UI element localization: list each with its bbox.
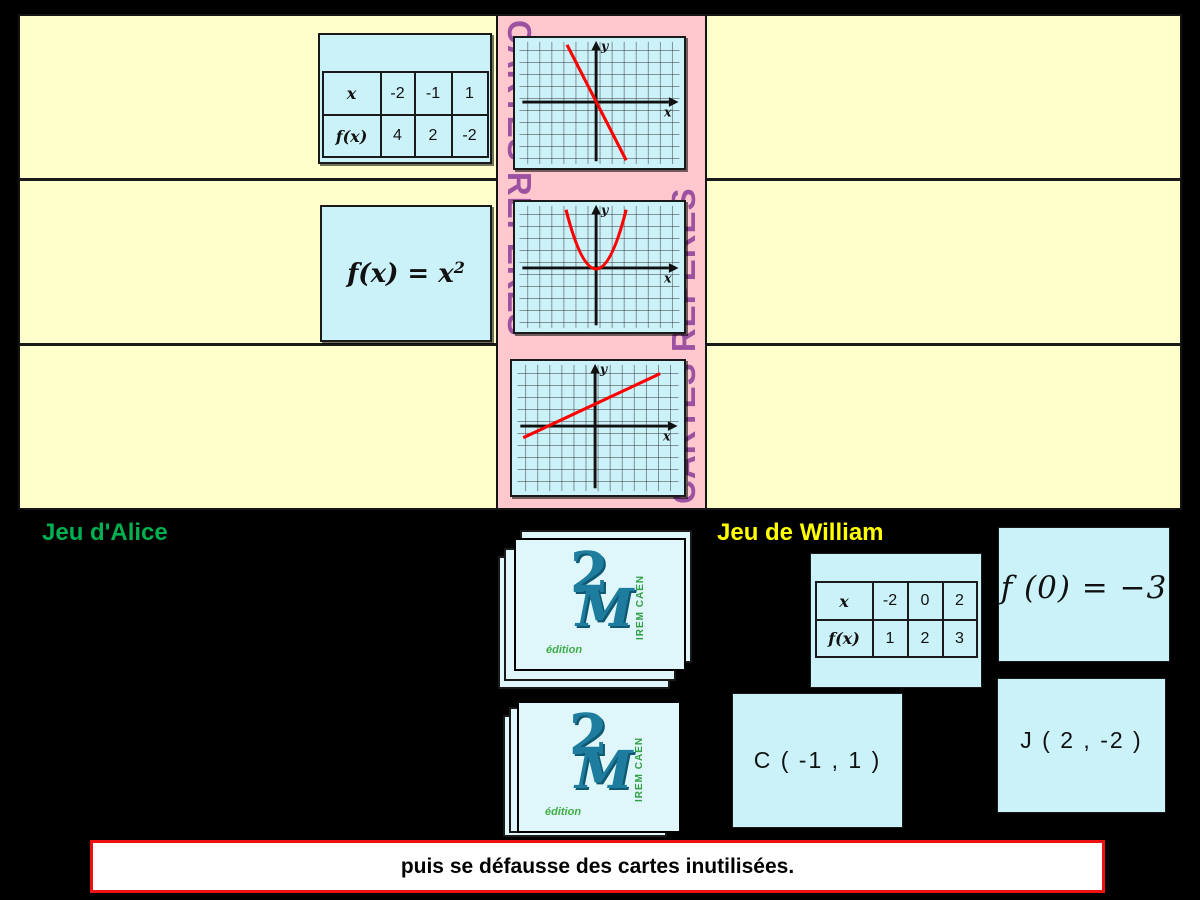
point-card-text: C ( -1 , 1 ) (754, 747, 882, 774)
value-table: x -2 -1 1 f(x) 4 2 -2 (322, 71, 489, 158)
table-cell: 1 (452, 72, 488, 115)
instruction-banner: puis se défausse des cartes inutilisées. (90, 840, 1105, 893)
table-cell: f(x) (816, 620, 873, 657)
formula-card[interactable]: f(x) = x2 (320, 205, 492, 342)
reference-cards-column: CARTES REPÈRES CARTES REPÈRES x (496, 16, 707, 508)
point-card-j[interactable]: J ( 2 , -2 ) (997, 678, 1166, 813)
row-divider (20, 343, 498, 346)
table-cell: x (323, 72, 381, 115)
table-cell: 1 (873, 620, 908, 657)
table-cell: -1 (415, 72, 452, 115)
row-divider (20, 178, 498, 181)
card-stack-bottom[interactable]: 2 M IREM CAEN édition (500, 694, 690, 840)
table-cell: 3 (943, 620, 977, 657)
table-cell: f(x) (323, 115, 381, 157)
alice-table-card[interactable]: x -2 -1 1 f(x) 4 2 -2 (318, 33, 492, 164)
graph-parabola: x y (515, 202, 684, 332)
row-divider (707, 343, 1180, 346)
x-axis-label: x (662, 429, 671, 444)
value-card-text: f (0) = −3 (1001, 570, 1168, 606)
graph-card-parabola[interactable]: x y (513, 200, 686, 334)
logo-edition-label: édition (546, 644, 582, 656)
table-cell: 4 (381, 115, 415, 157)
table-cell: x (816, 582, 873, 620)
table-cell: -2 (381, 72, 415, 115)
logo-institute-label: IREM CAEN (634, 718, 645, 802)
x-axis-label: x (663, 105, 672, 120)
william-title: Jeu de William (717, 519, 884, 547)
william-table-card[interactable]: x -2 0 2 f(x) 1 2 3 (810, 553, 982, 688)
value-card-f0[interactable]: f (0) = −3 (998, 527, 1170, 662)
instruction-text: puis se défausse des cartes inutilisées. (401, 855, 794, 879)
game-slide: x -2 -1 1 f(x) 4 2 -2 f(x) = x2 CARTES R… (0, 0, 1200, 900)
irem-2m-logo: 2 M IREM CAEN édition (554, 552, 646, 658)
table-cell: 0 (908, 582, 943, 620)
stack-card-front: 2 M IREM CAEN édition (517, 701, 681, 833)
logo-letter: M (576, 578, 634, 639)
value-table: x -2 0 2 f(x) 1 2 3 (815, 581, 978, 658)
graph-card-decreasing-line[interactable]: x y (513, 36, 686, 170)
matching-board: x -2 -1 1 f(x) 4 2 -2 f(x) = x2 CARTES R… (18, 14, 1182, 510)
x-axis-label: x (663, 271, 672, 286)
logo-letter: M (575, 740, 633, 801)
table-cell: 2 (415, 115, 452, 157)
logo-institute-label: IREM CAEN (635, 556, 646, 640)
graph-increasing-line: x y (512, 361, 684, 495)
graph-decreasing-line: x y (515, 38, 684, 168)
point-card-c[interactable]: C ( -1 , 1 ) (732, 693, 903, 828)
graph-card-increasing-line[interactable]: x y (510, 359, 686, 497)
irem-2m-logo: 2 M IREM CAEN édition (553, 714, 645, 820)
stack-card-front: 2 M IREM CAEN édition (514, 538, 686, 671)
table-cell: -2 (873, 582, 908, 620)
card-stack-top[interactable]: 2 M IREM CAEN édition (496, 528, 696, 692)
table-cell: 2 (943, 582, 977, 620)
formula-exponent: 2 (454, 258, 465, 277)
alice-title: Jeu d'Alice (42, 519, 168, 547)
table-cell: -2 (452, 115, 488, 157)
point-card-text: J ( 2 , -2 ) (1020, 727, 1142, 754)
logo-edition-label: édition (545, 806, 581, 818)
formula-text: f(x) = x (347, 259, 454, 289)
table-cell: 2 (908, 620, 943, 657)
row-divider (707, 178, 1180, 181)
